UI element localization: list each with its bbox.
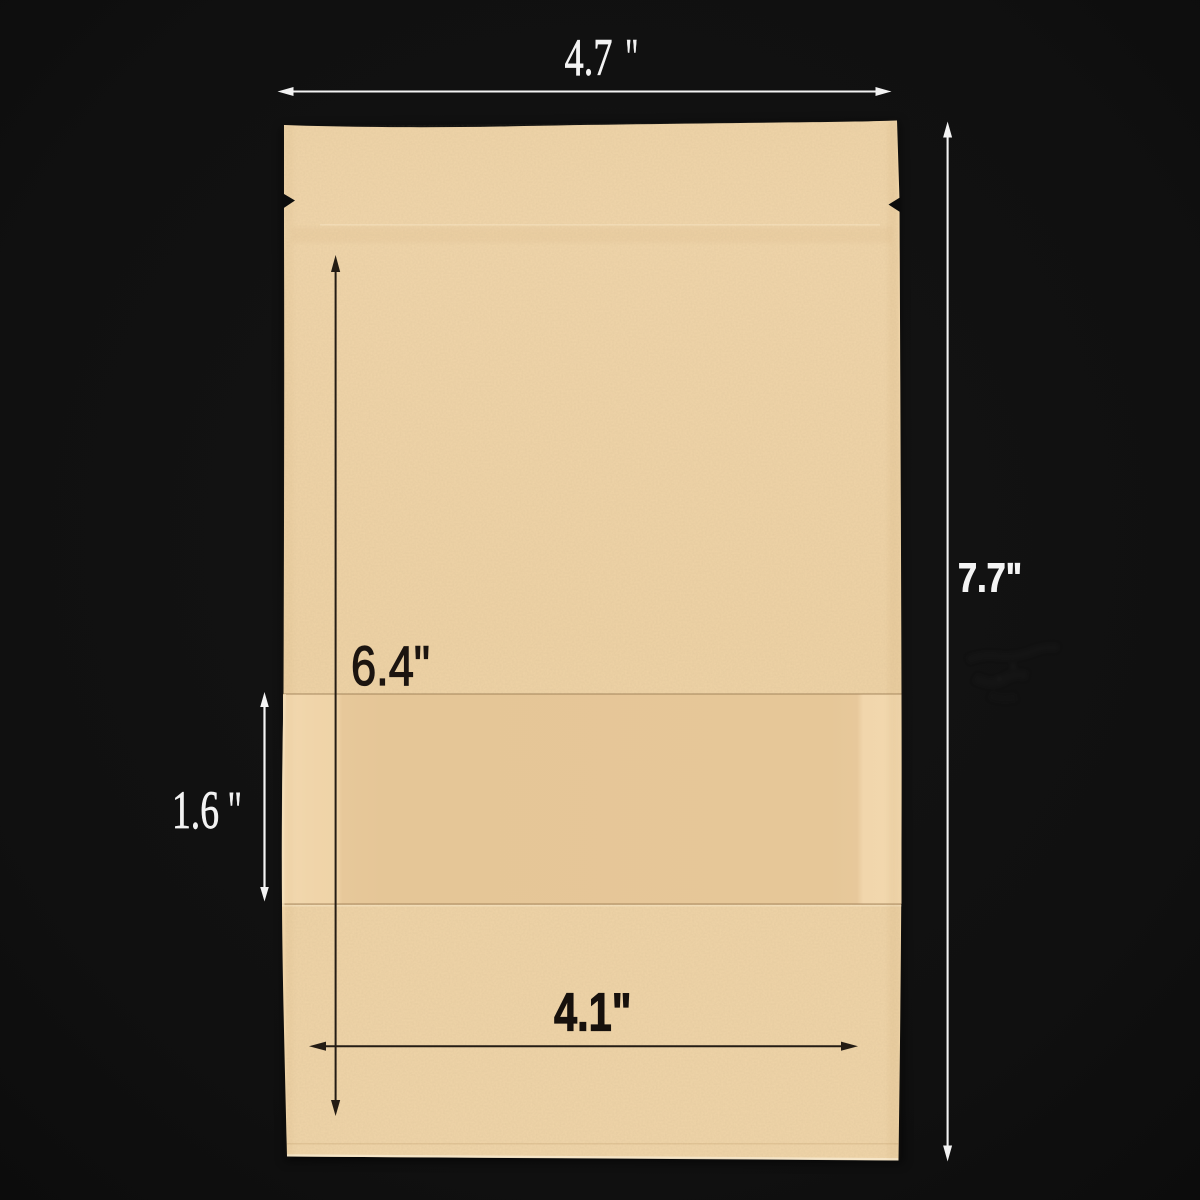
svg-text:4.1": 4.1" [554,983,632,1043]
svg-text:4.7: 4.7 [565,29,613,87]
svg-text:6.4": 6.4" [351,634,430,697]
svg-text:": " [228,780,243,840]
svg-text:7.7": 7.7" [958,555,1022,601]
svg-text:1.6: 1.6 [172,780,219,840]
svg-text:": " [625,29,639,87]
